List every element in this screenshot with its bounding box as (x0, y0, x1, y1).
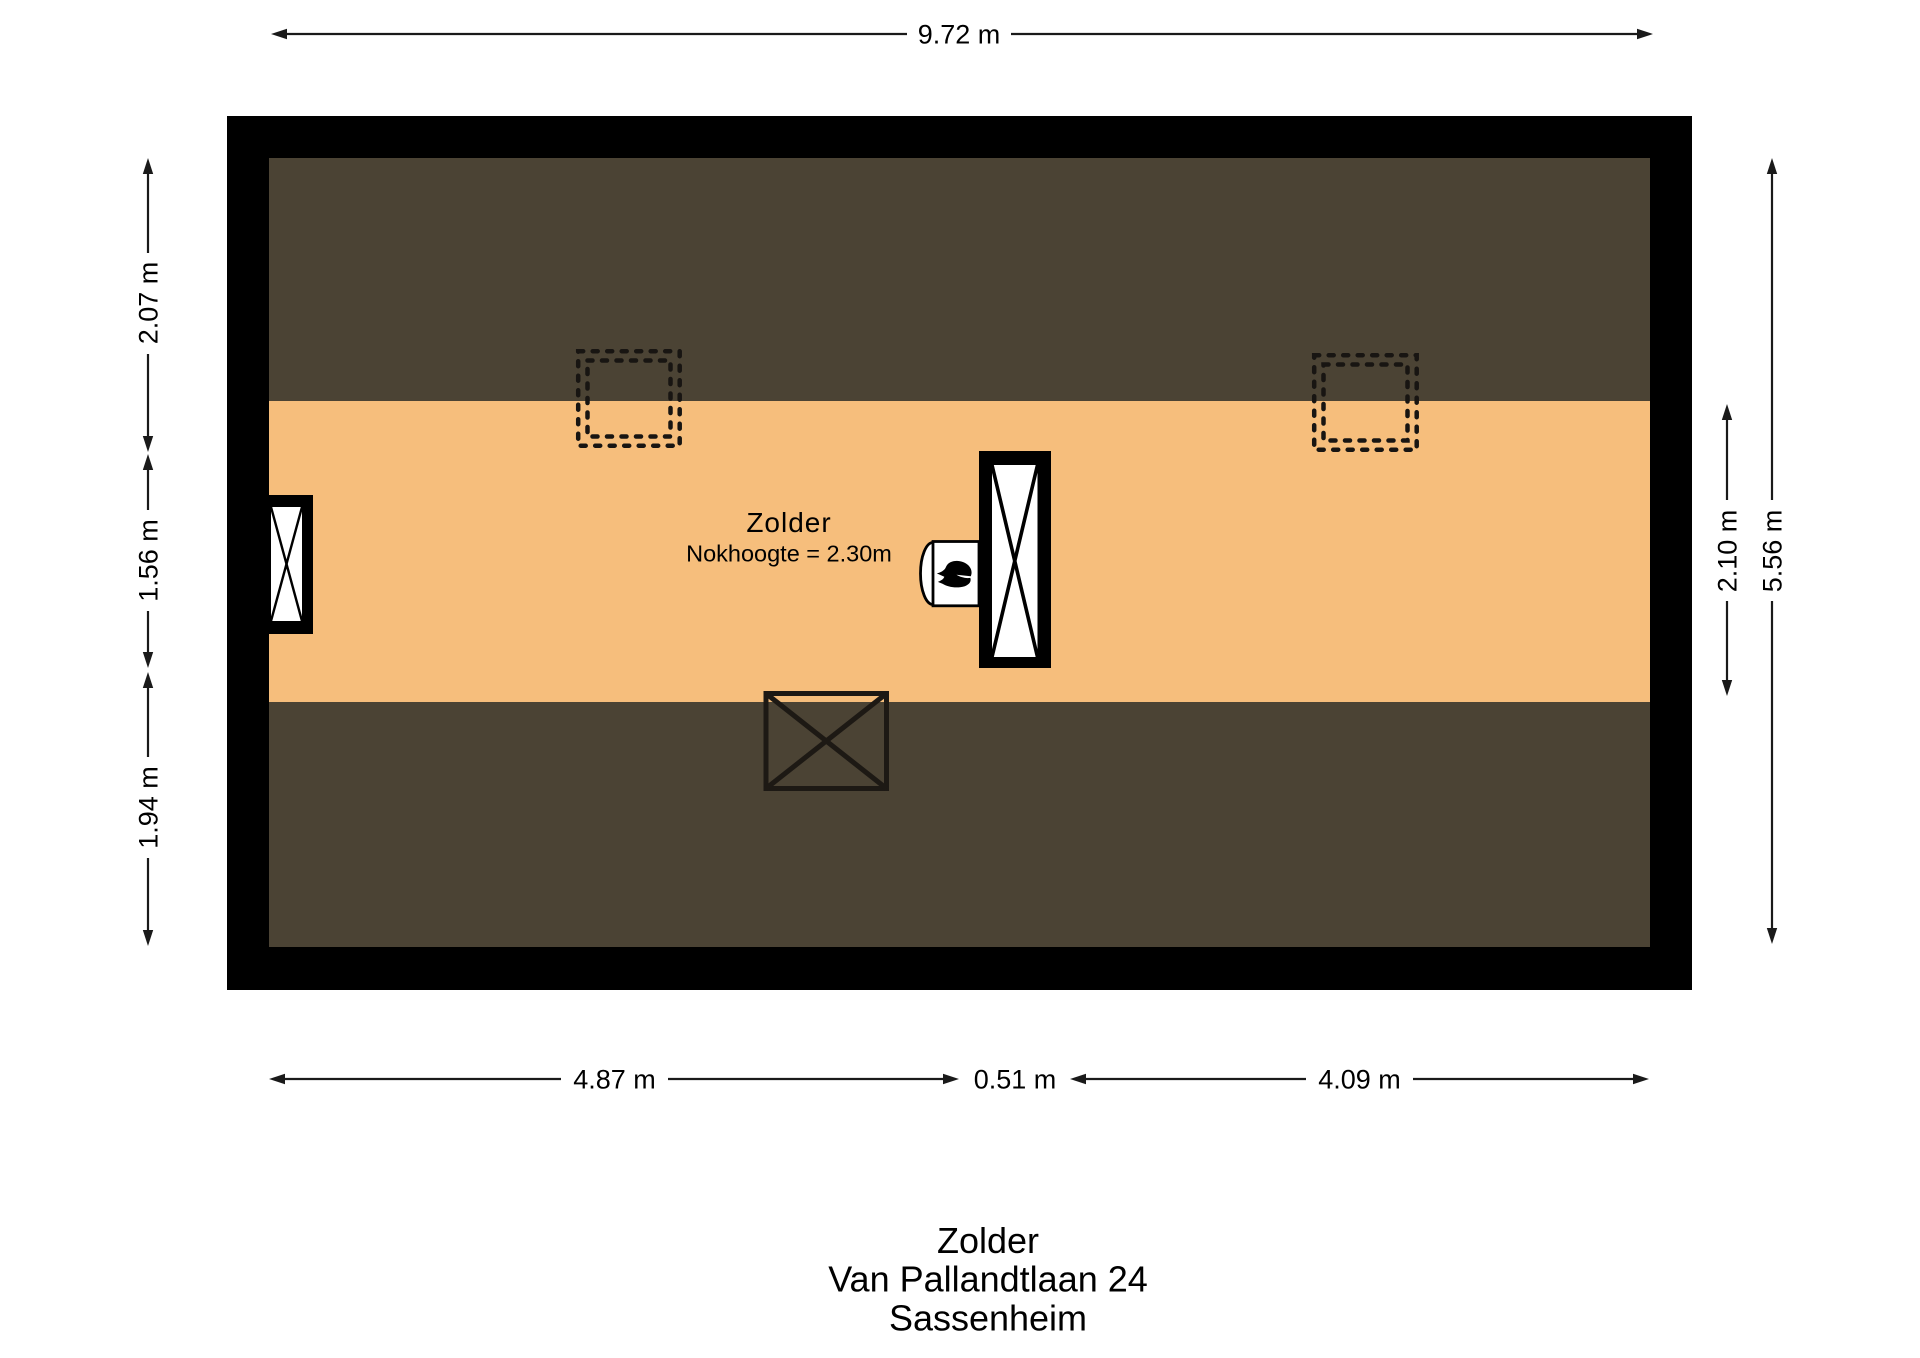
svg-text:Zolder: Zolder (937, 1220, 1039, 1261)
svg-text:Van Pallandtlaan 24: Van Pallandtlaan 24 (828, 1259, 1148, 1300)
svg-text:Zolder: Zolder (746, 507, 831, 538)
svg-text:4.09 m: 4.09 m (1318, 1065, 1401, 1095)
svg-text:0.51 m: 0.51 m (974, 1065, 1057, 1095)
svg-text:4.87 m: 4.87 m (573, 1065, 656, 1095)
svg-text:5.56 m: 5.56 m (1758, 510, 1788, 593)
svg-text:2.10 m: 2.10 m (1713, 510, 1743, 593)
svg-text:Nokhoogte = 2.30m: Nokhoogte = 2.30m (686, 541, 892, 567)
svg-text:Sassenheim: Sassenheim (889, 1297, 1087, 1338)
svg-text:1.56 m: 1.56 m (134, 519, 164, 602)
svg-text:2.07 m: 2.07 m (134, 262, 164, 345)
svg-text:1.94 m: 1.94 m (134, 766, 164, 849)
svg-text:9.72 m: 9.72 m (918, 20, 1001, 50)
